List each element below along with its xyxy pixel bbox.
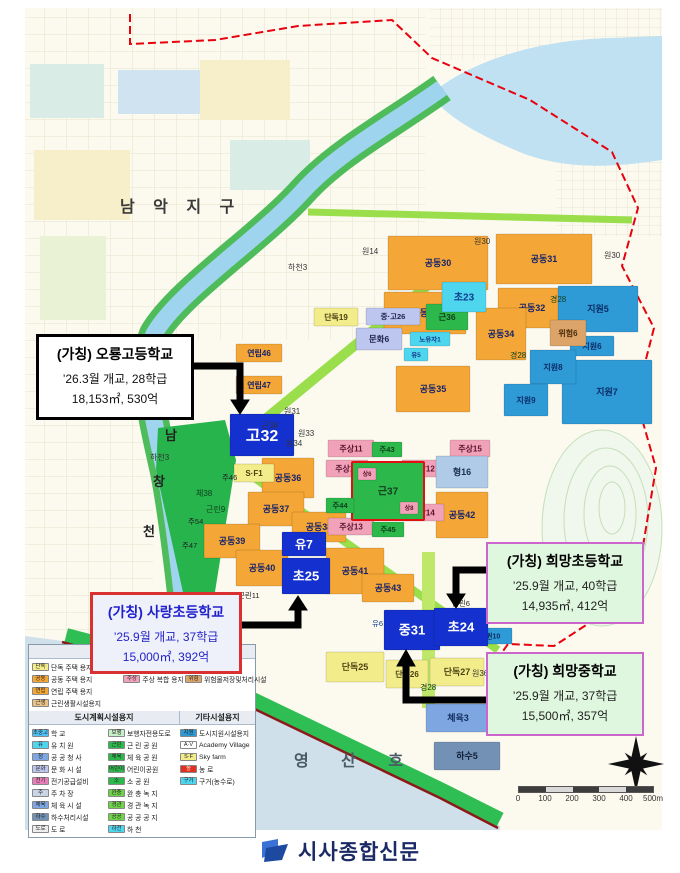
legend-label: 공 공 공 지 (127, 812, 158, 822)
map-label: 경28 (550, 294, 567, 304)
legend-item: 근린근 린 공 원 (108, 740, 180, 750)
legend-label: 공 공 청 사 (51, 752, 82, 762)
legend-planning-items: 초중고학 교유유 치 원청공 공 청 사문화문 화 시 설전기전기공급설비주주 … (29, 725, 255, 837)
scale-segment (519, 787, 546, 792)
legend-swatch: 근생 (32, 699, 49, 707)
map-parcel: 형16 (436, 456, 488, 488)
parcel-label: 지원9 (516, 395, 536, 405)
map-parcel: 상8 (400, 502, 418, 514)
legend-label: Sky farm (199, 754, 226, 761)
map-label: 근34 (262, 421, 279, 430)
legend-item: 도로도 로 (32, 824, 108, 834)
callout-title: (가칭) 희망초등학교 (488, 551, 642, 571)
map-parcel: 단독19 (314, 308, 358, 326)
legend-swatch: 근린 (108, 741, 125, 749)
legend-label: 근린생활시설용지 (51, 698, 101, 708)
map-parcel: 주44 (326, 498, 354, 513)
map-parcel: 공동40 (236, 550, 288, 586)
news-map-figure: 공동30공동31공동32공동33공동34공동35공동36공동37공동38공동39… (0, 0, 680, 873)
legend-label: 경 관 녹 지 (127, 800, 158, 810)
legend-swatch: 하천 (108, 825, 125, 833)
scale-segment (546, 787, 573, 792)
scale-label: 200 (565, 794, 578, 803)
map-label: 체38 (196, 488, 213, 498)
parcel-label: 유7 (295, 537, 313, 551)
legend-swatch: 전기 (32, 777, 49, 785)
legend-section-headers: 도시계획시설용지 기타시설용지 (29, 711, 255, 725)
legend-item: 전기전기공급설비 (32, 776, 108, 786)
map-parcel: 초24 (434, 608, 488, 646)
map-parcel: 지원8 (530, 350, 576, 384)
map-label: 원33 (298, 429, 315, 438)
legend-label: 전기공급설비 (51, 776, 89, 786)
map-label: 원31 (284, 407, 301, 416)
map-label: 경28 (510, 350, 527, 360)
callout-line: 15,500㎡, 357억 (488, 707, 642, 724)
parcel-label: 주상11 (339, 443, 363, 453)
legend-swatch: 문화 (32, 765, 49, 773)
scale-segment (573, 787, 600, 792)
map-parcel: 유5 (404, 348, 428, 361)
legend-item: 공동공동 주택 용지 (32, 674, 123, 684)
legend-swatch: 공공 (108, 813, 125, 821)
legend-swatch: A·V (180, 741, 197, 749)
scale-label: 300 (592, 794, 605, 803)
scale-bar-segments (518, 786, 654, 793)
legend-item: 보행보행자전용도로 (108, 728, 180, 738)
legend-swatch: 도로 (32, 825, 49, 833)
callout-line: 18,153㎡, 530억 (39, 390, 191, 407)
legend-label: 공동 주택 용지 (51, 674, 92, 684)
legend-column: 보행보행자전용도로근린근 린 공 원체육체 육 공 원어린이어린이공원소소 공 … (108, 728, 180, 834)
parcel-label: 위험6 (558, 328, 578, 338)
parcel-label: 상6 (363, 470, 373, 478)
legend-label: Academy Village (199, 742, 250, 749)
callout-line: 14,935㎡, 412억 (488, 597, 642, 614)
map-parcel: 문화6 (356, 328, 402, 350)
callout-line: 15,000㎡, 392억 (93, 648, 239, 665)
legend-swatch: 청 (32, 753, 49, 761)
legend-label: 농 로 (199, 764, 213, 774)
legend-item: 경관경 관 녹 지 (108, 800, 180, 810)
legend-item: 주주 차 장 (32, 788, 108, 798)
parcel-label: 지원7 (596, 386, 618, 397)
parcel-label: 유5 (411, 350, 421, 359)
scale-segment (599, 787, 626, 792)
legend-item: 농농 로 (180, 764, 252, 774)
map-label: 경28 (420, 682, 437, 692)
legend-item: 지원도시지원시설용지 (180, 728, 252, 738)
legend-swatch: 어린이 (108, 765, 125, 773)
callout-title: (가칭) 오룡고등학교 (39, 344, 191, 364)
legend-swatch: 보행 (108, 729, 125, 737)
parcel-label: 공동43 (375, 583, 402, 593)
callout-huimang-elementary: (가칭) 희망초등학교 ’25.9월 개교, 40학급 14,935㎡, 412… (486, 542, 644, 624)
legend-item: 청공 공 청 사 (32, 752, 108, 762)
map-label: 하천3 (150, 452, 170, 462)
map-parcel: 주상15 (450, 440, 490, 457)
map-label: 근린9 (206, 504, 226, 514)
map-parcel: 체육3 (426, 704, 490, 732)
legend-item: 체육체 육 시 설 (32, 800, 108, 810)
parcel-label: 고32 (246, 428, 279, 445)
callout-title: (가칭) 희망중학교 (488, 661, 642, 681)
legend-item: 위험위험물저장및처리시설 (185, 674, 253, 684)
parcel-label: 상8 (405, 504, 415, 512)
legend-swatch: 주 (32, 789, 49, 797)
map-parcel: 주상11 (328, 440, 374, 457)
callout-title: (가칭) 사랑초등학교 (93, 602, 239, 622)
callout-line: ’25.9월 개교, 37학급 (93, 628, 239, 645)
map-parcel: S·F1 (234, 464, 274, 482)
parcel-label: 초24 (448, 620, 475, 635)
legend-label: 학 교 (51, 728, 65, 738)
map-parcel: 연립46 (236, 344, 282, 362)
legend-swatch: S·F (180, 753, 197, 761)
newspaper-name: 시사종합신문 (298, 836, 420, 866)
map-label: 원14 (362, 247, 379, 256)
legend-label: 어린이공원 (127, 764, 158, 774)
legend-label: 소 공 원 (127, 776, 150, 786)
legend-item: 어린이어린이공원 (108, 764, 180, 774)
legend-swatch: 연립 (32, 687, 49, 695)
legend-column: 초중고학 교유유 치 원청공 공 청 사문화문 화 시 설전기전기공급설비주주 … (32, 728, 108, 834)
callout-line: ’26.3월 개교, 28학급 (39, 370, 191, 387)
parcel-label: 근36 (438, 312, 456, 322)
callout-line: ’25.9월 개교, 37학급 (488, 687, 642, 704)
map-label: 남 (165, 428, 177, 443)
map-parcel: 주43 (372, 442, 402, 457)
map-parcel: 하수5 (434, 742, 500, 770)
parcel-label: 주상15 (458, 443, 482, 453)
map-label: 주54 (188, 517, 203, 526)
parcel-label: 공동42 (449, 510, 476, 520)
map-label: 주47 (182, 541, 197, 550)
legend-swatch: 체육 (32, 801, 49, 809)
legend-label: 주상 복합 용지 (142, 674, 183, 684)
parcel-label: 공동40 (249, 563, 276, 573)
legend-label: 주 차 장 (51, 788, 74, 798)
parcel-label: 초25 (293, 569, 319, 584)
map-label: 영 산 호 (294, 752, 417, 770)
parcel-label: 주45 (380, 525, 395, 534)
scale-segment (626, 787, 653, 792)
parcel-label: 연립46 (247, 348, 271, 358)
map-parcel: 초25 (282, 558, 330, 594)
legend-label: 도 로 (51, 824, 65, 834)
map-label: 하천3 (288, 262, 308, 272)
map-parcel: 공동43 (362, 574, 414, 602)
legend-swatch: 단독 (32, 663, 49, 671)
legend-item: 연립연립 주택 용지 (32, 686, 123, 696)
scale-label: 400 (619, 794, 632, 803)
legend-column: 지원도시지원시설용지A·VAcademy VillageS·FSky farm농… (180, 728, 252, 834)
legend-label: 구거(농수로) (199, 776, 235, 786)
parcel-label: 체육3 (447, 712, 469, 723)
map-parcel: 유7 (282, 532, 326, 556)
parcel-label: 중31 (399, 623, 425, 638)
legend-swatch: 위험 (185, 675, 202, 683)
map-parcel: 노유자1 (410, 332, 450, 346)
map-parcel: 위험6 (550, 320, 586, 346)
map-parcel: 상6 (358, 468, 376, 480)
legend-label: 도시지원시설용지 (199, 728, 249, 738)
parcel-label: 공동39 (219, 536, 246, 546)
parcel-label: 하수5 (456, 750, 478, 761)
legend-item: 구거구거(농수로) (180, 776, 252, 786)
map-parcel: 주45 (372, 522, 404, 537)
legend-item: 문화문 화 시 설 (32, 764, 108, 774)
legend-item: 유유 치 원 (32, 740, 108, 750)
legend-swatch: 주상 (123, 675, 140, 683)
map-parcel: 지원9 (504, 384, 548, 416)
scale-label: 100 (538, 794, 551, 803)
parcel-label: 공동35 (420, 384, 447, 394)
legend-planning-title: 도시계획시설용지 (29, 711, 180, 724)
legend-etc-title: 기타시설용지 (180, 711, 255, 724)
legend-item: 공공공 공 공 지 (108, 812, 180, 822)
parcel-label: 근37 (378, 486, 399, 498)
legend-item: 완충완 충 녹 지 (108, 788, 180, 798)
map-label: 남 악 지 구 (120, 197, 241, 216)
parcel-label: 주상13 (339, 521, 363, 531)
map-label: 원30 (604, 251, 621, 260)
parcel-label: 형16 (453, 466, 471, 477)
legend-item: 소소 공 원 (108, 776, 180, 786)
callout-sarang-elementary: (가칭) 사랑초등학교 ’25.9월 개교, 37학급 15,000㎡, 392… (90, 592, 242, 674)
legend-item: 근생근린생활시설용지 (32, 698, 123, 708)
parcel-label: 초23 (454, 291, 475, 304)
legend-swatch: 공동 (32, 675, 49, 683)
legend-label: 하수처리시설 (51, 812, 89, 822)
parcel-label: 공동34 (488, 329, 515, 339)
scale-label: 0 (516, 794, 520, 803)
legend-item: 하천하 천 (108, 824, 180, 834)
legend-swatch: 소 (108, 777, 125, 785)
map-parcel: 중·고26 (366, 308, 420, 325)
legend-swatch: 체육 (108, 753, 125, 761)
map-parcel: 단독25 (326, 652, 384, 682)
legend-swatch: 초중고 (32, 729, 49, 737)
legend-item: S·FSky farm (180, 752, 252, 762)
legend-swatch: 구거 (180, 777, 197, 785)
legend-swatch: 유 (32, 741, 49, 749)
parcel-label: 문화6 (369, 334, 390, 344)
map-parcel: 중31 (384, 610, 440, 650)
legend-item: A·VAcademy Village (180, 740, 252, 750)
legend-label: 유 치 원 (51, 740, 74, 750)
legend-swatch: 농 (180, 765, 197, 773)
map-parcel: 공동31 (496, 234, 592, 284)
parcel-label: 공동30 (425, 258, 452, 268)
parcel-label: 중·고26 (381, 312, 406, 321)
parcel-label: 공동31 (531, 254, 558, 264)
scale-bar: 0100200300400500m (518, 786, 654, 804)
callout-huimang-middle: (가칭) 희망중학교 ’25.9월 개교, 37학급 15,500㎡, 357억 (486, 652, 644, 736)
map-label: 천 (143, 524, 155, 539)
parcel-label: 연립47 (247, 380, 271, 390)
legend-label: 하 천 (127, 824, 141, 834)
legend-label: 체 육 공 원 (127, 752, 158, 762)
map-label: 유6 (372, 619, 383, 628)
legend-item: 주상주상 복합 용지 (123, 674, 185, 684)
callout-oryong-high-school: (가칭) 오룡고등학교 ’26.3월 개교, 28학급 18,153㎡, 530… (36, 334, 194, 420)
parcel-label: 공동37 (263, 504, 290, 514)
legend-label: 근 린 공 원 (127, 740, 158, 750)
legend-label: 단독 주택 용지 (51, 662, 92, 672)
parcel-label: 단독19 (324, 312, 348, 322)
parcel-label: 지원5 (587, 303, 609, 314)
legend-label: 체 육 시 설 (51, 800, 82, 810)
legend-label: 보행자전용도로 (127, 728, 171, 738)
parcel-label: 단독27 (444, 666, 471, 677)
legend-label: 위험물저장및처리시설 (204, 674, 267, 684)
parcel-label: 지원8 (543, 362, 563, 372)
legend-label: 문 화 시 설 (51, 764, 82, 774)
legend-swatch: 지원 (180, 729, 197, 737)
parcel-label: S·F1 (245, 469, 263, 478)
newspaper-logo-icon (260, 838, 290, 864)
legend-swatch: 경관 (108, 801, 125, 809)
map-label: 주46 (222, 473, 237, 482)
callout-line: ’25.9월 개교, 40학급 (488, 577, 642, 594)
footer-logo: 시사종합신문 (0, 836, 680, 866)
legend-swatch: 하수 (32, 813, 49, 821)
legend-swatch: 완충 (108, 789, 125, 797)
legend-item: 체육체 육 공 원 (108, 752, 180, 762)
parcel-label: 노유자1 (419, 334, 441, 343)
legend-label: 연립 주택 용지 (51, 686, 92, 696)
map-parcel: 초23 (442, 282, 486, 312)
legend-item: 하수하수처리시설 (32, 812, 108, 822)
map-label: 창 (153, 474, 165, 489)
map-label: 원30 (474, 237, 491, 246)
map-label: 원34 (286, 439, 303, 448)
parcel-label: 공동36 (275, 473, 302, 483)
map-parcel: 공동35 (396, 366, 470, 412)
legend-item: 초중고학 교 (32, 728, 108, 738)
scale-label: 500m (643, 794, 663, 803)
parcel-label: 단독25 (342, 661, 369, 672)
parcel-label: 주44 (332, 501, 348, 510)
scale-bar-labels: 0100200300400500m (518, 793, 654, 804)
legend-label: 완 충 녹 지 (127, 788, 158, 798)
parcel-label: 주43 (379, 445, 394, 454)
